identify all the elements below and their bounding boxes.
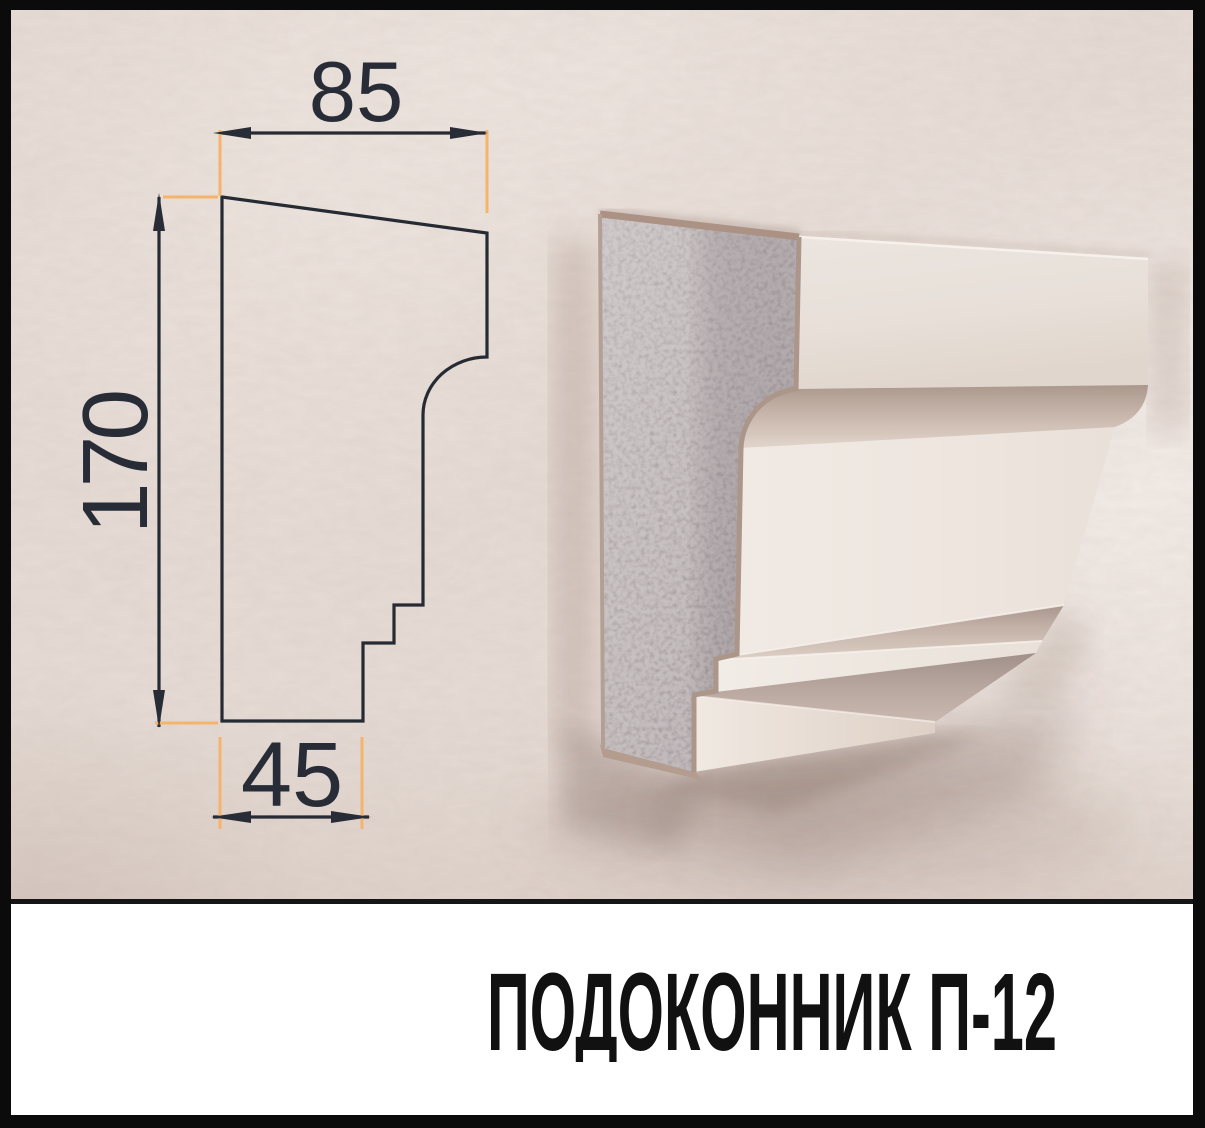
svg-text:170: 170 — [63, 392, 167, 534]
svg-text:ПОДОКОННИК П-12: ПОДОКОННИК П-12 — [487, 951, 1057, 1074]
svg-text:85: 85 — [309, 45, 404, 140]
svg-text:45: 45 — [241, 724, 343, 826]
